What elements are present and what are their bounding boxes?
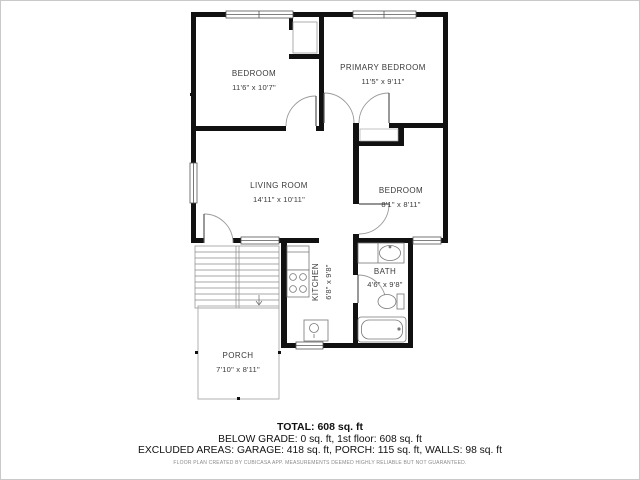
bath-label: BATH [374, 267, 396, 276]
bedroom1-label: BEDROOM [232, 69, 276, 78]
window-bedroom3-bottom [413, 237, 441, 244]
floor-plan-page: BEDROOM 11'6" x 10'7" PRIMARY BEDROOM 11… [0, 0, 640, 480]
door-primary-bedroom [324, 93, 354, 123]
disclaimer-text: FLOOR PLAN CREATED BY CUBICASA APP. MEAS… [1, 460, 639, 466]
kitchen-label-group: KITCHEN 6'8" x 9'8" [311, 263, 333, 301]
window-living-bottom [241, 237, 279, 244]
door-bedroom1 [286, 96, 316, 126]
porch-label: PORCH [223, 351, 254, 360]
window-bedroom1-top [226, 11, 293, 18]
closet-slider-bedroom1 [293, 22, 317, 53]
bathtub [358, 317, 406, 342]
kitchen-counter [287, 246, 309, 270]
toilet [378, 294, 404, 309]
below-grade-line: BELOW GRADE: 0 sq. ft, 1st floor: 608 sq… [1, 434, 639, 446]
excluded-line: EXCLUDED AREAS: GARAGE: 418 sq. ft, PORC… [1, 445, 639, 457]
window-living-left [190, 163, 197, 203]
window-primary-top [353, 11, 416, 18]
bedroom1-dims: 11'6" x 10'7" [232, 83, 276, 92]
kitchen-label: KITCHEN [311, 263, 320, 301]
bath-fixtures [358, 243, 406, 342]
primary-bedroom-dims: 11'5" x 9'11" [361, 77, 404, 86]
stairs [195, 246, 279, 308]
bedroom3-dims: 8'1" x 8'11" [381, 200, 420, 209]
stove [287, 270, 309, 297]
floor-plan-svg: BEDROOM 11'6" x 10'7" PRIMARY BEDROOM 11… [1, 1, 639, 416]
kitchen-fixtures [287, 246, 328, 341]
living-room-dims: 14'11" x 10'11" [253, 195, 305, 204]
total-area: TOTAL: 608 sq. ft [1, 422, 639, 434]
porch-dims: 7'10" x 8'11" [216, 365, 260, 374]
summary-footer: TOTAL: 608 sq. ft BELOW GRADE: 0 sq. ft,… [1, 422, 639, 466]
bath-dims: 4'6" x 9'8" [367, 280, 403, 289]
kitchen-dims: 6'8" x 9'8" [324, 264, 333, 300]
bath-vanity-sink [358, 243, 404, 263]
bedroom3-label: BEDROOM [379, 186, 423, 195]
window-kitchen-bottom [296, 342, 323, 349]
closet-shelf-bedroom3 [360, 129, 398, 141]
door-primary-closet [359, 93, 389, 123]
door-entry [204, 214, 233, 243]
primary-bedroom-label: PRIMARY BEDROOM [340, 63, 426, 72]
kitchen-sink [304, 320, 328, 341]
living-room-label: LIVING ROOM [250, 181, 308, 190]
